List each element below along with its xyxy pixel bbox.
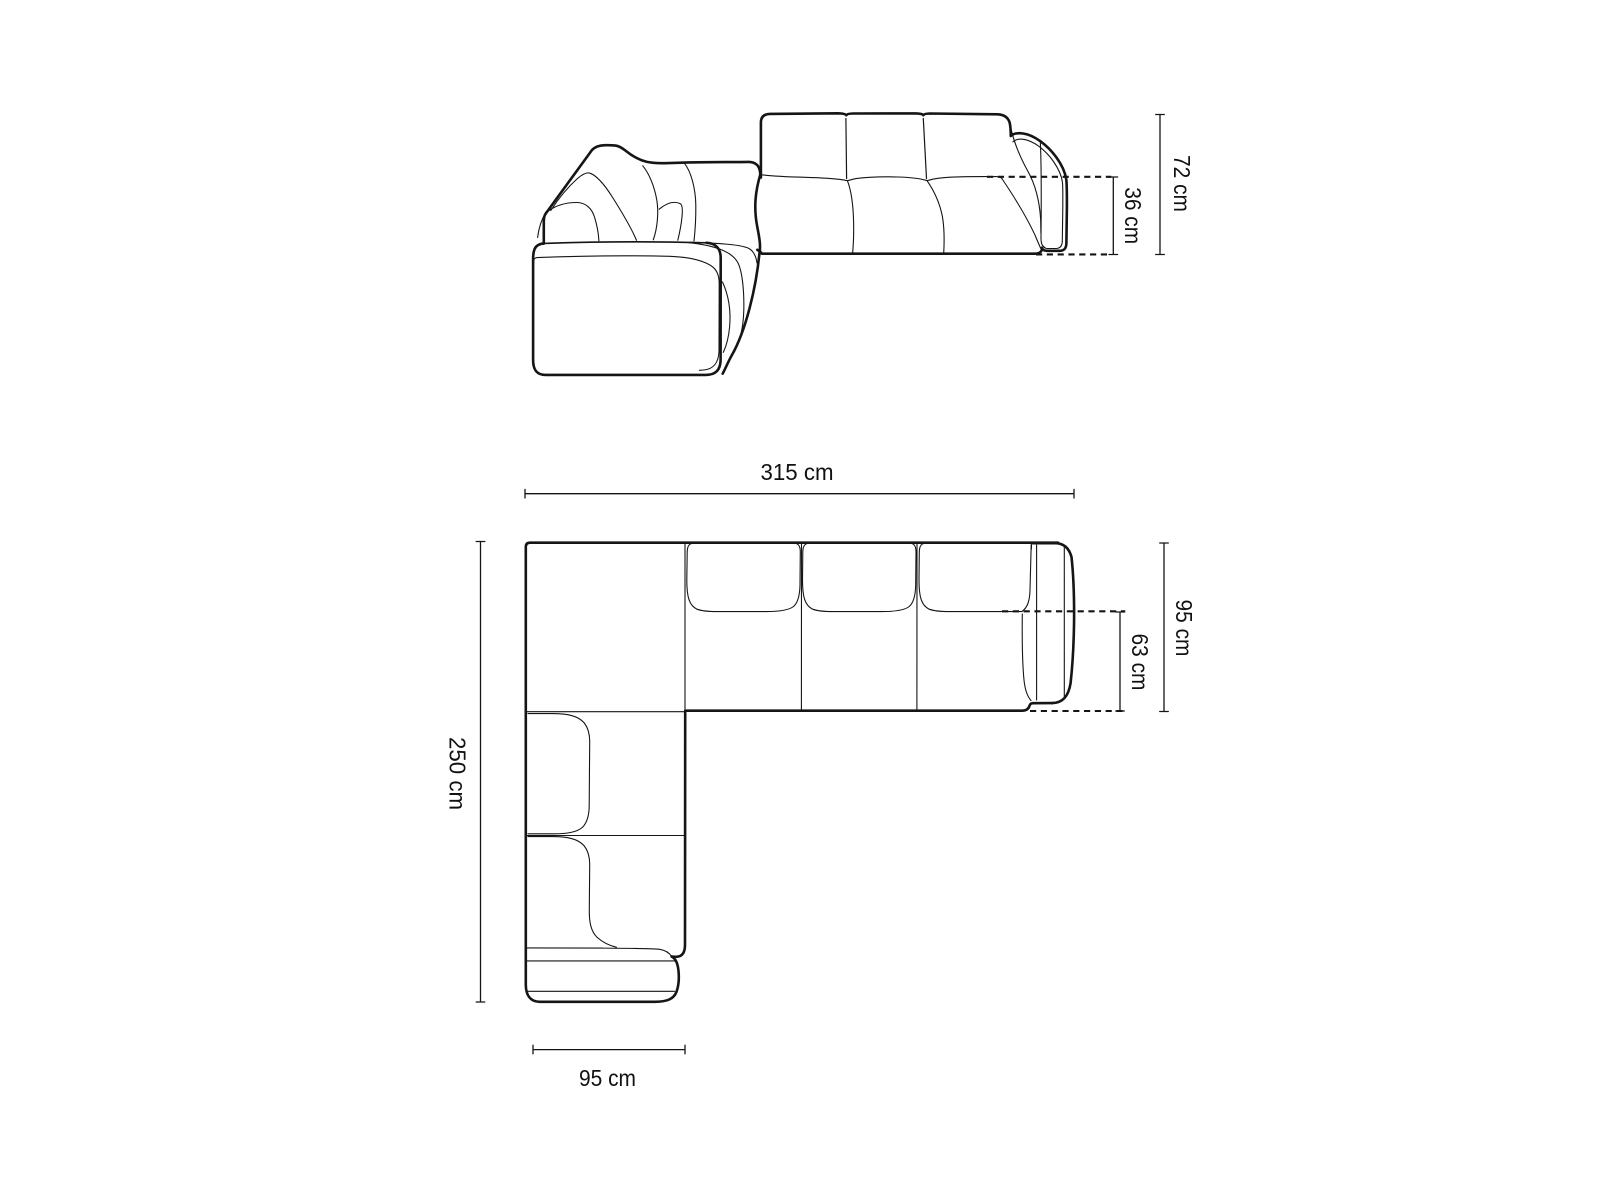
svg-text:72 cm: 72 cm (1169, 155, 1195, 212)
svg-text:250 cm: 250 cm (445, 737, 471, 810)
svg-text:63 cm: 63 cm (1127, 634, 1153, 691)
svg-text:315 cm: 315 cm (761, 459, 834, 485)
svg-text:95 cm: 95 cm (579, 1065, 636, 1091)
svg-text:95 cm: 95 cm (1171, 600, 1197, 657)
svg-text:36 cm: 36 cm (1120, 187, 1146, 244)
